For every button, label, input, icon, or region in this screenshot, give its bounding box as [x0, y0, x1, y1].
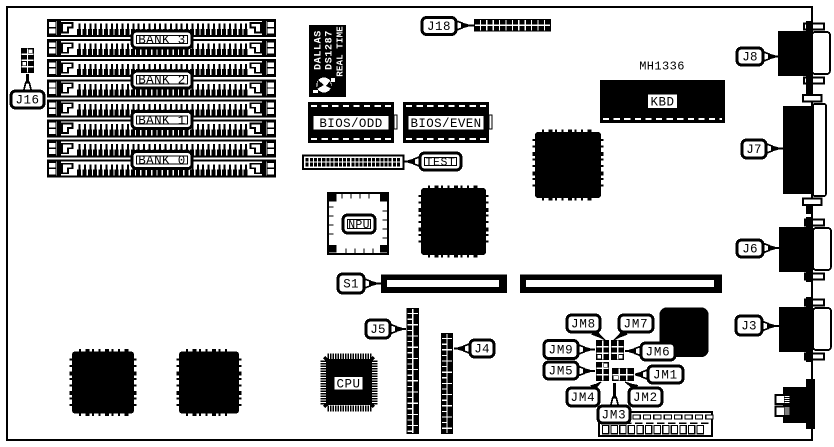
- svg-text:J8: J8: [742, 51, 758, 65]
- svg-text:JM9: JM9: [549, 344, 574, 358]
- svg-text:BANK 1: BANK 1: [138, 114, 185, 128]
- svg-text:J5: J5: [370, 323, 386, 337]
- svg-text:REAL TIME: REAL TIME: [335, 26, 346, 77]
- svg-text:BANK 3: BANK 3: [138, 34, 185, 48]
- svg-text:DALLAS: DALLAS: [314, 30, 325, 70]
- svg-text:J16: J16: [15, 94, 39, 108]
- svg-text:KBD: KBD: [650, 95, 674, 109]
- svg-text:BIOS/EVEN: BIOS/EVEN: [410, 117, 481, 131]
- svg-text:MH1336: MH1336: [639, 60, 685, 74]
- svg-text:BANK 2: BANK 2: [138, 74, 185, 88]
- svg-text:J18: J18: [427, 20, 451, 34]
- svg-text:J6: J6: [742, 243, 758, 257]
- svg-text:BANK 0: BANK 0: [138, 154, 185, 168]
- svg-text:JM6: JM6: [646, 346, 671, 360]
- svg-text:CPU: CPU: [336, 377, 360, 391]
- svg-text:JM1: JM1: [653, 369, 678, 383]
- svg-text:J7: J7: [746, 143, 762, 157]
- svg-text:JM4: JM4: [571, 391, 596, 405]
- svg-text:JM7: JM7: [624, 318, 649, 332]
- svg-text:JM3: JM3: [602, 409, 627, 423]
- svg-text:S1: S1: [343, 278, 359, 292]
- svg-text:BIOS/ODD: BIOS/ODD: [319, 117, 382, 131]
- svg-text:TEST: TEST: [425, 157, 455, 170]
- svg-text:J4: J4: [474, 343, 490, 357]
- svg-text:JM5: JM5: [549, 365, 574, 379]
- svg-text:J3: J3: [741, 320, 757, 334]
- svg-text:NPU: NPU: [348, 219, 370, 232]
- svg-text:JM2: JM2: [633, 391, 658, 405]
- svg-text:JM8: JM8: [571, 318, 596, 332]
